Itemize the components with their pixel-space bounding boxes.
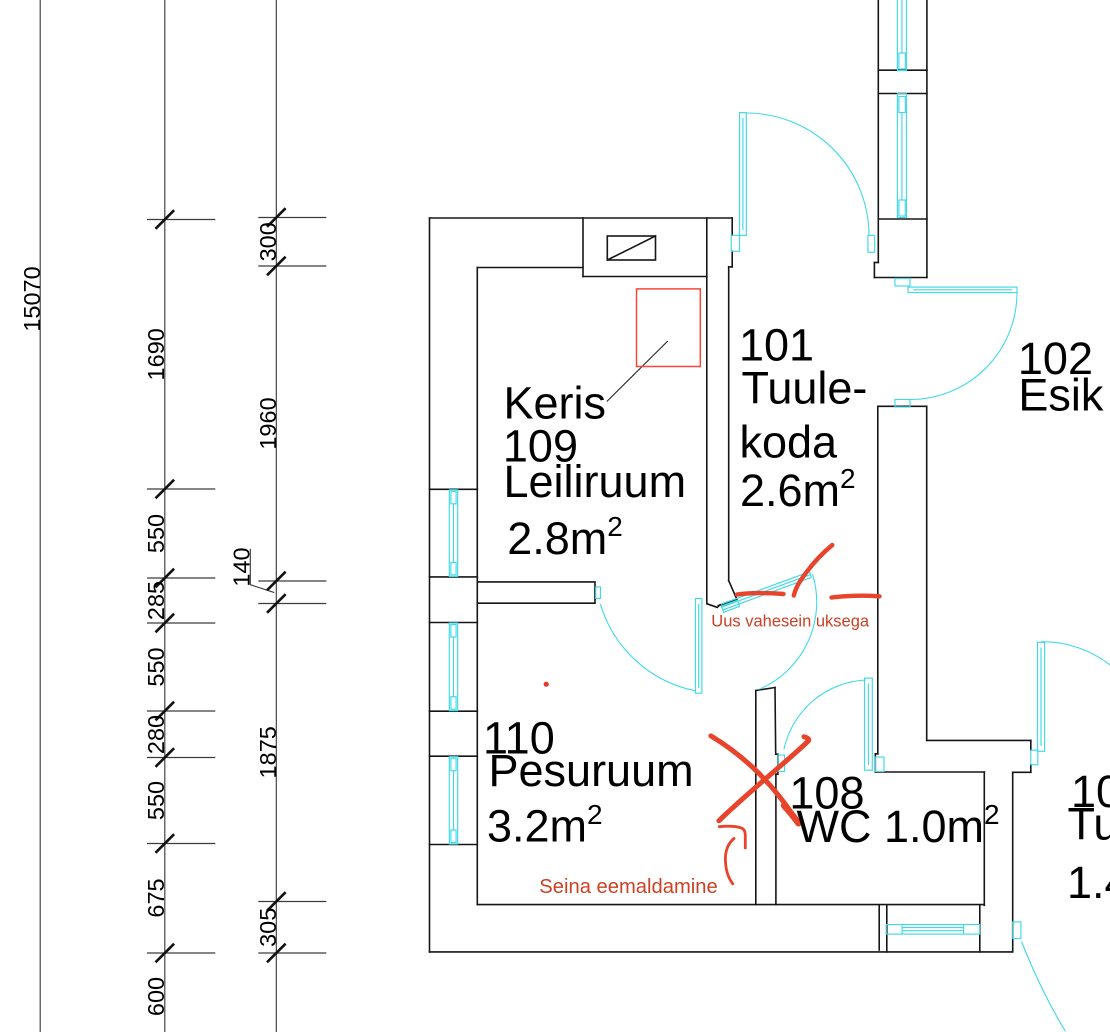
svg-text:140: 140 — [228, 547, 254, 586]
svg-text:Seina eemaldamine: Seina eemaldamine — [539, 876, 717, 898]
svg-text:305: 305 — [255, 908, 281, 947]
svg-text:600: 600 — [143, 977, 169, 1016]
svg-text:Uus vahesein uksega: Uus vahesein uksega — [711, 612, 870, 630]
svg-text:550: 550 — [143, 647, 169, 686]
svg-text:3.2m2: 3.2m2 — [487, 799, 603, 852]
svg-text:2.8m2: 2.8m2 — [507, 511, 623, 564]
svg-text:550: 550 — [143, 514, 169, 553]
svg-text:Tuule-: Tuule- — [742, 363, 868, 414]
svg-text:550: 550 — [143, 781, 169, 820]
svg-text:Leiliruum: Leiliruum — [504, 456, 687, 507]
svg-text:Pesuruum: Pesuruum — [489, 745, 694, 796]
svg-text:285: 285 — [143, 581, 169, 620]
svg-text:15070: 15070 — [19, 266, 45, 331]
svg-text:1960: 1960 — [255, 397, 281, 449]
svg-text:2.6m2: 2.6m2 — [740, 463, 856, 516]
svg-text:1690: 1690 — [143, 328, 169, 380]
svg-text:WC 1.0m2: WC 1.0m2 — [797, 799, 1000, 852]
svg-text:koda: koda — [740, 417, 839, 468]
svg-text:300: 300 — [255, 222, 281, 261]
svg-text:Tualett: Tualett — [1068, 799, 1110, 850]
svg-text:1.4m2: 1.4m2 — [1067, 855, 1110, 908]
svg-text:Esik: Esik — [1018, 369, 1104, 420]
svg-text:1875: 1875 — [255, 726, 281, 778]
svg-text:675: 675 — [143, 878, 169, 917]
svg-text:280: 280 — [143, 715, 169, 754]
